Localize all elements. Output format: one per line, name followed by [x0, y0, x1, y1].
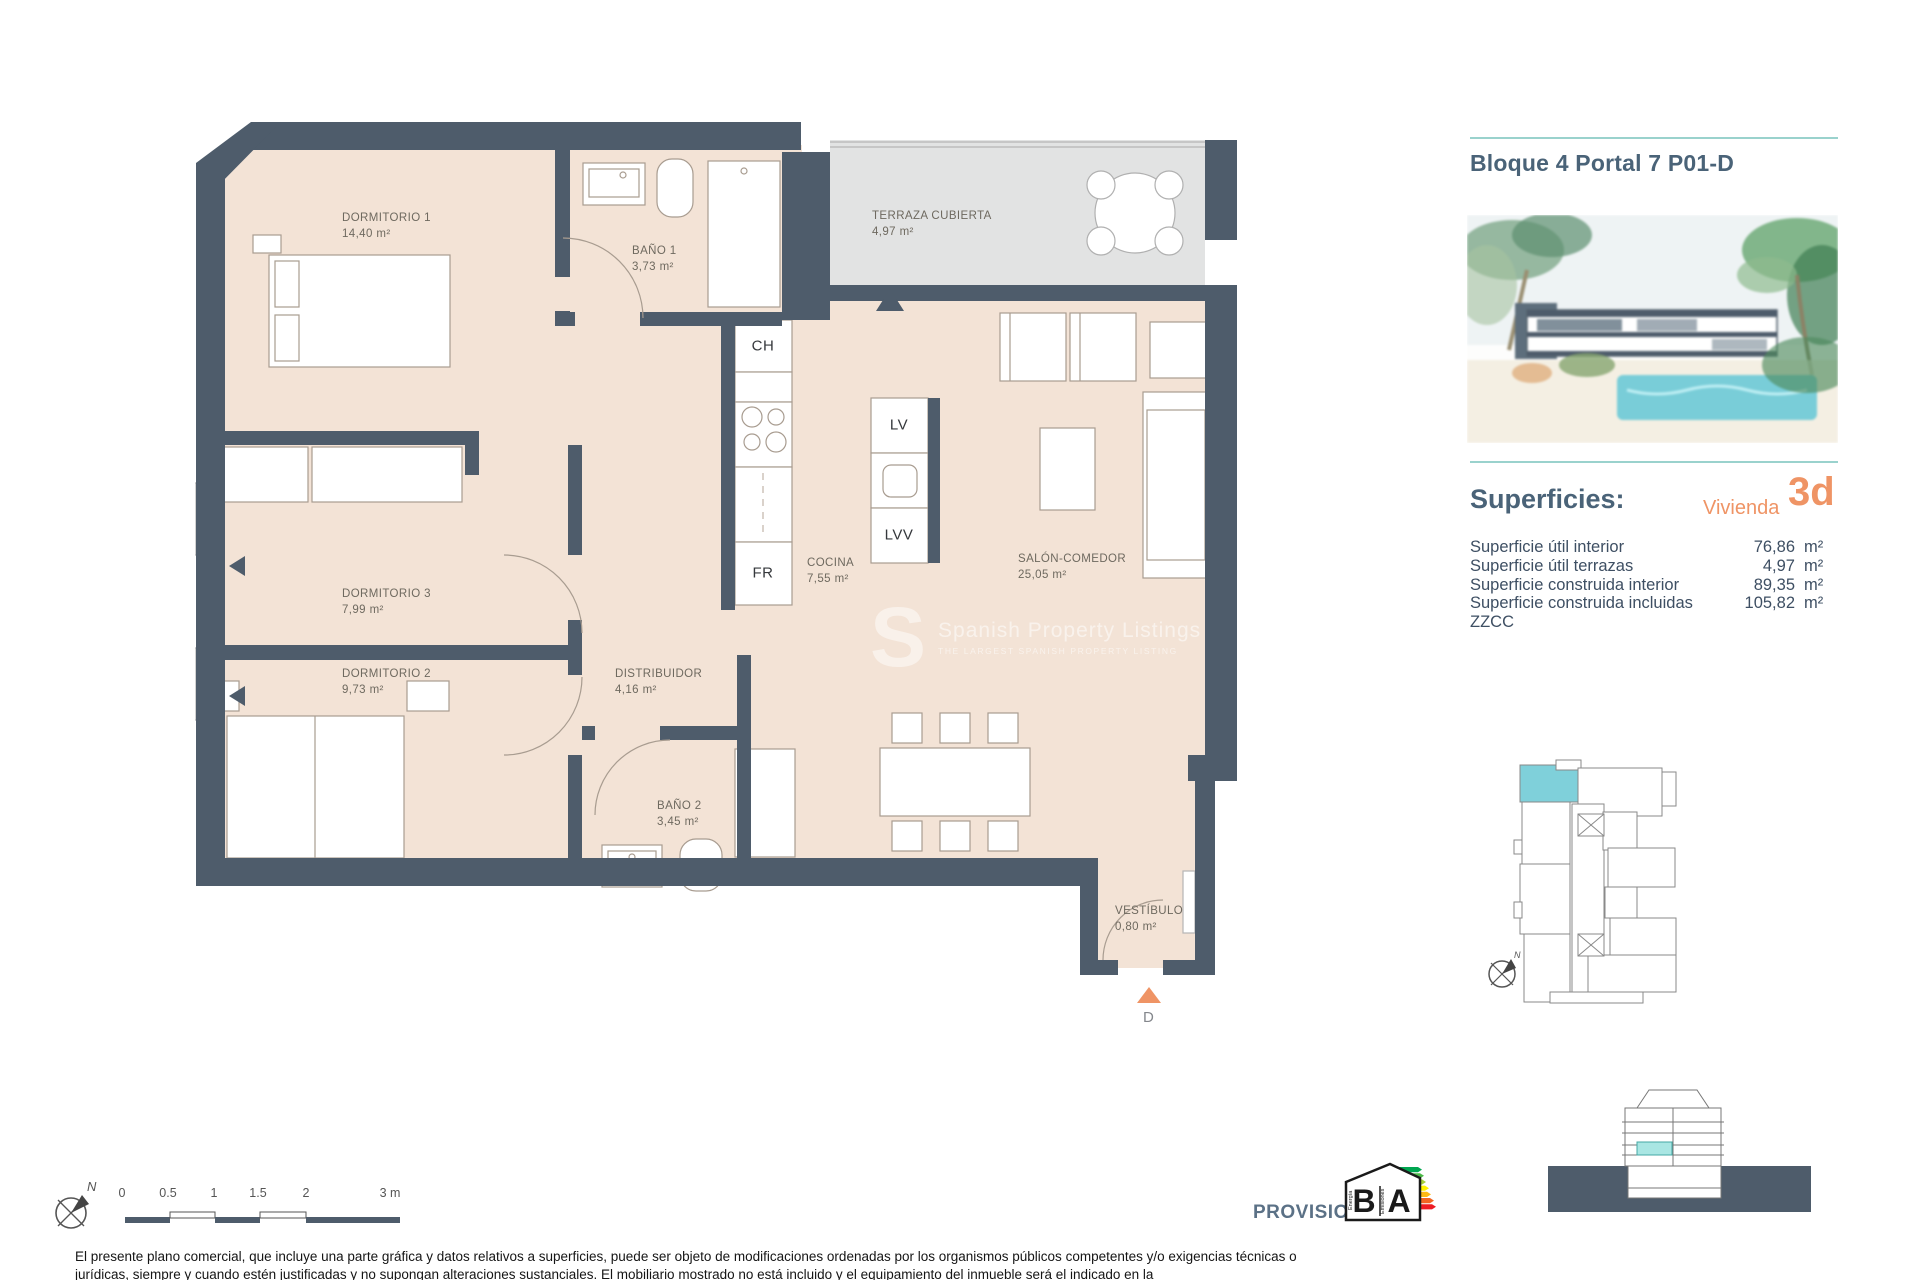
room-label-terraza: TERRAZA CUBIERTA4,97 m² [872, 208, 992, 240]
svg-text:B: B [1352, 1183, 1375, 1219]
superficies-row: Superficie útil terrazas4,97m² [1470, 557, 1838, 576]
room-label-bano2: BAÑO 23,45 m² [657, 798, 702, 830]
svg-text:A: A [1387, 1183, 1410, 1219]
svg-text:Emisiones: Emisiones [1380, 1188, 1386, 1214]
floorplan-sheet: DORMITORIO 114,40 m² BAÑO 13,73 m² TERRA… [0, 0, 1920, 1280]
elevation-highlighted-unit [1637, 1142, 1672, 1155]
superficies-row: Superficie útil interior76,86m² [1470, 538, 1838, 557]
building-elevation [1540, 1082, 1825, 1227]
superficies-table: Superficie útil interior76,86m² Superfic… [1470, 538, 1838, 632]
superficies-row: Superficie construida interior89,35m² [1470, 576, 1838, 595]
keyplan-compass-icon: N [1489, 950, 1521, 987]
room-label-salon: SALÓN-COMEDOR25,05 m² [1018, 551, 1126, 583]
room-label-vestibulo: VESTÍBULO0,80 m² [1115, 903, 1183, 935]
project-rendering-image [1467, 215, 1838, 443]
disclaimer-text: El presente plano comercial, que incluye… [75, 1248, 1325, 1280]
vivienda-code: 3d [1788, 470, 1835, 515]
room-label-dormitorio1: DORMITORIO 114,40 m² [342, 210, 431, 242]
room-label-dormitorio3: DORMITORIO 37,99 m² [342, 586, 431, 618]
appliance-label-fr: FR [753, 565, 774, 582]
appliance-label-lvv: LVV [885, 527, 914, 544]
superficies-row: Superficie construida incluidas ZZCC105,… [1470, 594, 1838, 632]
keyplan: N [1478, 752, 1713, 1017]
energy-rating-icon: B A Energía Emisiones [1340, 1158, 1440, 1233]
superficies-heading: Superficies: [1470, 484, 1625, 515]
divider-top [1470, 137, 1838, 139]
watermark-logo: S Spanish Property Listings THE LARGEST … [870, 600, 1201, 676]
divider-middle [1470, 461, 1838, 463]
floorplan-canvas: DORMITORIO 114,40 m² BAÑO 13,73 m² TERRA… [195, 115, 1245, 1050]
svg-text:N: N [87, 1179, 97, 1194]
appliance-label-ch: CH [752, 338, 775, 355]
scale-bar: 0 0.5 1 1.5 2 3 m [100, 1183, 420, 1228]
svg-text:Energía: Energía [1348, 1190, 1354, 1210]
keyplan-highlighted-unit [1520, 765, 1578, 802]
appliance-label-lv: LV [890, 417, 908, 434]
room-label-dormitorio2: DORMITORIO 29,73 m² [342, 666, 431, 698]
svg-text:N: N [1514, 950, 1521, 960]
room-label-cocina: COCINA7,55 m² [807, 555, 854, 587]
page-title: Bloque 4 Portal 7 P01-D [1470, 150, 1734, 177]
vivienda-label: Vivienda [1703, 497, 1779, 520]
room-label-bano1: BAÑO 13,73 m² [632, 243, 677, 275]
room-label-distribuidor: DISTRIBUIDOR4,16 m² [615, 666, 702, 698]
entrance-label: D [1143, 1009, 1154, 1026]
entrance-arrow [1137, 987, 1161, 1003]
